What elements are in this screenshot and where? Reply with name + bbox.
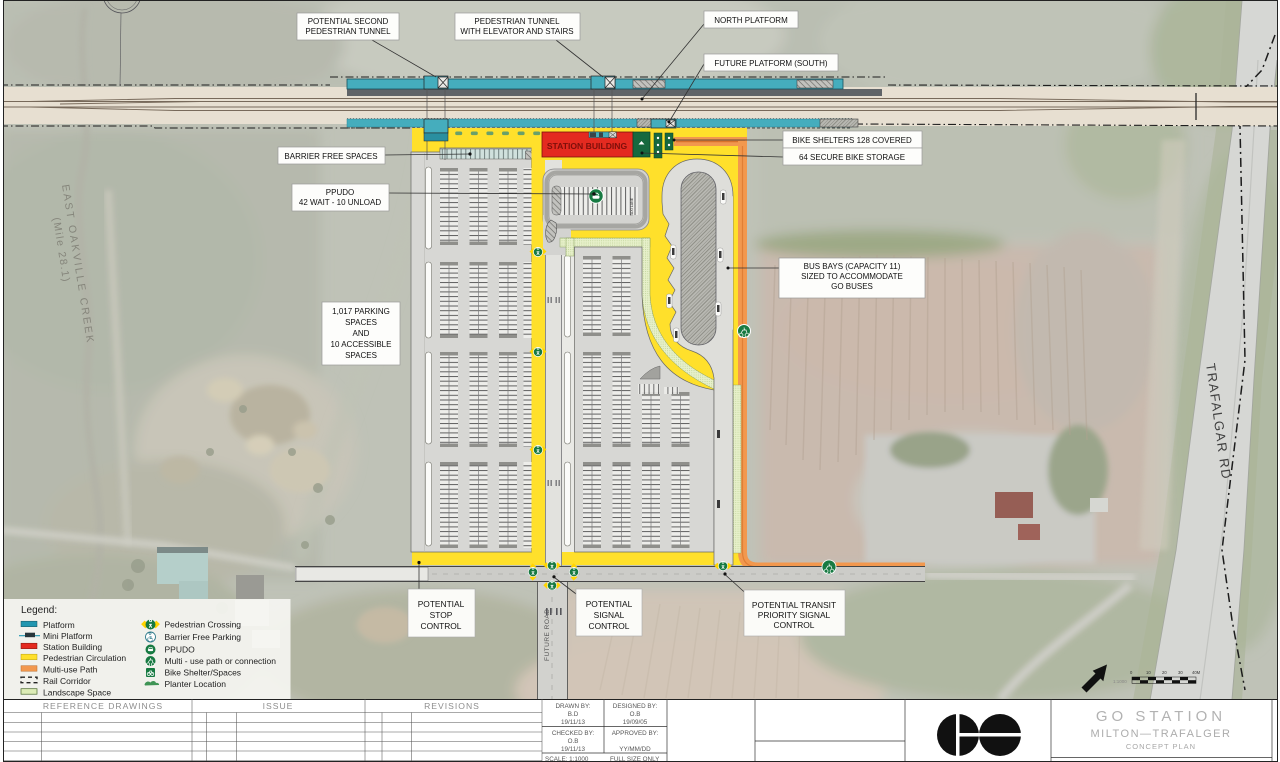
svg-text:BARRIER FREE SPACES: BARRIER FREE SPACES — [284, 152, 377, 161]
svg-text:CONTROL: CONTROL — [589, 621, 630, 631]
svg-text:Pedestrian Circulation: Pedestrian Circulation — [43, 653, 126, 663]
svg-text:CONCEPT PLAN: CONCEPT PLAN — [1126, 742, 1196, 751]
svg-text:Station Building: Station Building — [43, 642, 102, 652]
svg-text:POTENTIAL TRANSIT: POTENTIAL TRANSIT — [752, 600, 836, 610]
svg-text:POTENTIAL: POTENTIAL — [586, 599, 633, 609]
svg-text:Barrier Free Parking: Barrier Free Parking — [165, 632, 242, 642]
svg-text:1,017 PARKING: 1,017 PARKING — [332, 307, 390, 316]
svg-text:DRAWN BY:: DRAWN BY: — [555, 703, 590, 710]
svg-text:TAXI LANE: TAXI LANE — [630, 197, 634, 216]
svg-text:20: 20 — [1162, 670, 1167, 675]
svg-text:BUS BAYS (CAPACITY 11): BUS BAYS (CAPACITY 11) — [804, 262, 901, 271]
svg-text:BIKE SHELTERS 128 COVERED: BIKE SHELTERS 128 COVERED — [792, 136, 912, 145]
svg-text:1:1000: 1:1000 — [1113, 679, 1127, 684]
svg-text:CONTROL: CONTROL — [774, 620, 815, 630]
svg-text:O.B: O.B — [630, 711, 641, 718]
svg-text:10 ACCESSIBLE: 10 ACCESSIBLE — [331, 340, 392, 349]
svg-text:YY/MM/DD: YY/MM/DD — [619, 746, 651, 753]
svg-text:Rail Corridor: Rail Corridor — [43, 676, 91, 686]
svg-text:30: 30 — [1178, 670, 1183, 675]
svg-text:APPROVED BY:: APPROVED BY: — [612, 730, 659, 737]
svg-text:Platform: Platform — [43, 620, 75, 630]
svg-text:PPUDO: PPUDO — [165, 645, 196, 655]
svg-text:Pedestrian Crossing: Pedestrian Crossing — [165, 620, 242, 630]
svg-text:STATION BUILDING: STATION BUILDING — [547, 141, 628, 151]
svg-text:STOP: STOP — [430, 610, 453, 620]
svg-text:B.D: B.D — [568, 711, 579, 718]
svg-text:PPUDO: PPUDO — [326, 188, 354, 197]
svg-text:GO BUSES: GO BUSES — [831, 282, 873, 291]
svg-text:FUTURE PLATFORM (SOUTH): FUTURE PLATFORM (SOUTH) — [714, 59, 828, 68]
svg-text:Bike Shelter/Spaces: Bike Shelter/Spaces — [165, 668, 242, 678]
svg-text:FUTURE ROAD: FUTURE ROAD — [544, 609, 551, 661]
svg-text:40M: 40M — [1192, 670, 1201, 675]
svg-text:NORTH PLATFORM: NORTH PLATFORM — [714, 16, 788, 25]
svg-text:SPACES: SPACES — [345, 351, 377, 360]
svg-text:SIGNAL: SIGNAL — [594, 610, 625, 620]
svg-text:19/11/13: 19/11/13 — [561, 746, 586, 753]
svg-text:WITH ELEVATOR AND STAIRS: WITH ELEVATOR AND STAIRS — [460, 27, 573, 36]
svg-text:Mini Platform: Mini Platform — [43, 631, 93, 641]
svg-text:POTENTIAL: POTENTIAL — [418, 599, 465, 609]
svg-text:Legend:: Legend: — [21, 605, 57, 616]
svg-text:CONTROL: CONTROL — [421, 621, 462, 631]
svg-text:19/11/13: 19/11/13 — [561, 719, 586, 726]
svg-text:AND: AND — [353, 329, 370, 338]
svg-text:REFERENCE DRAWINGS: REFERENCE DRAWINGS — [43, 701, 163, 711]
svg-text:O.B: O.B — [568, 738, 579, 745]
svg-text:ISSUE: ISSUE — [263, 701, 294, 711]
svg-text:19/09/05: 19/09/05 — [623, 719, 648, 726]
svg-text:PRIORITY SIGNAL: PRIORITY SIGNAL — [758, 610, 831, 620]
svg-text:CHECKED BY:: CHECKED BY: — [552, 730, 595, 737]
svg-text:SPACES: SPACES — [345, 318, 377, 327]
svg-text:42 WAIT - 10 UNLOAD: 42 WAIT - 10 UNLOAD — [299, 198, 381, 207]
svg-text:Planter Location: Planter Location — [165, 679, 227, 689]
svg-text:GO STATION: GO STATION — [1096, 708, 1226, 725]
svg-text:10: 10 — [1146, 670, 1151, 675]
svg-text:Landscape Space: Landscape Space — [43, 688, 111, 698]
svg-text:REVISIONS: REVISIONS — [424, 701, 480, 711]
svg-text:Multi-use Path: Multi-use Path — [43, 665, 98, 675]
svg-text:64 SECURE BIKE STORAGE: 64 SECURE BIKE STORAGE — [799, 153, 905, 162]
svg-text:SIZED TO ACCOMMODATE: SIZED TO ACCOMMODATE — [801, 272, 903, 281]
svg-text:PEDESTRIAN TUNNEL: PEDESTRIAN TUNNEL — [474, 17, 560, 26]
svg-text:PEDESTRIAN TUNNEL: PEDESTRIAN TUNNEL — [305, 27, 391, 36]
svg-text:POTENTIAL SECOND: POTENTIAL SECOND — [308, 17, 389, 26]
svg-text:DESIGNED BY:: DESIGNED BY: — [613, 703, 658, 710]
svg-text:Multi - use path or connection: Multi - use path or connection — [165, 656, 277, 666]
svg-text:MILTON—TRAFALGER: MILTON—TRAFALGER — [1091, 728, 1232, 740]
